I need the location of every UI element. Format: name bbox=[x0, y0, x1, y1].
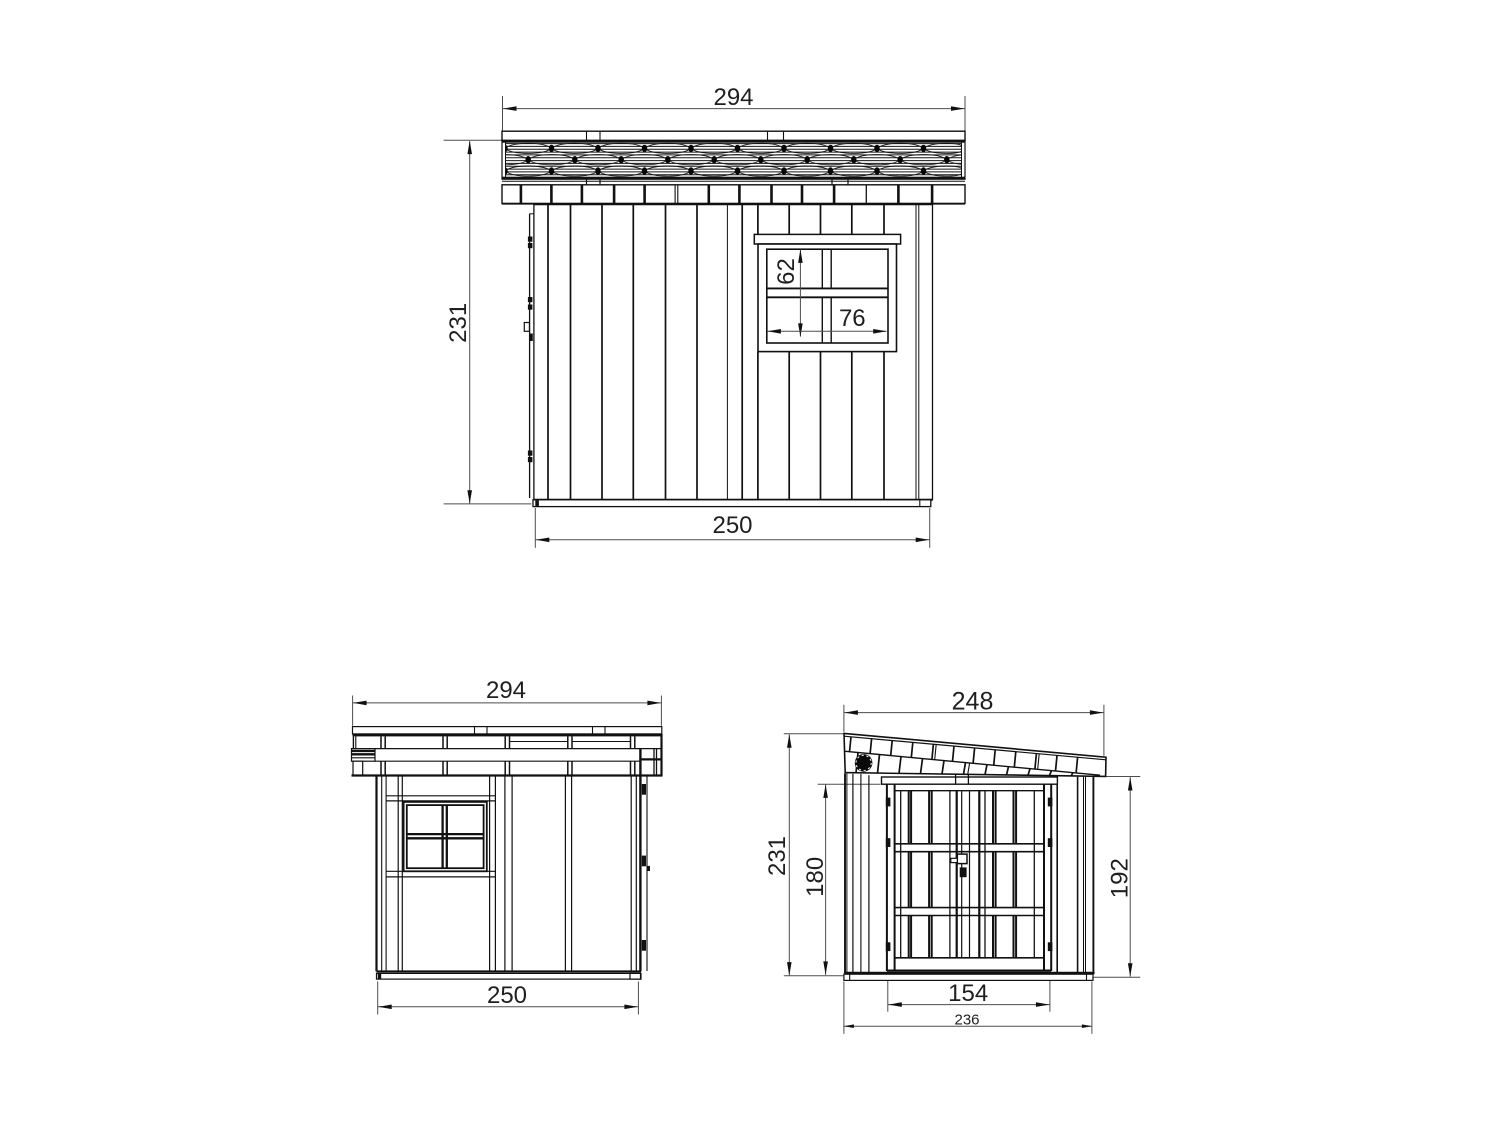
svg-text:231: 231 bbox=[764, 836, 791, 876]
svg-text:62: 62 bbox=[773, 258, 800, 285]
svg-text:76: 76 bbox=[839, 305, 866, 332]
svg-text:294: 294 bbox=[713, 84, 753, 111]
svg-text:154: 154 bbox=[948, 980, 988, 1007]
svg-text:231: 231 bbox=[445, 303, 472, 343]
svg-text:180: 180 bbox=[802, 857, 829, 897]
svg-text:250: 250 bbox=[487, 982, 527, 1009]
svg-text:250: 250 bbox=[712, 512, 752, 539]
svg-text:192: 192 bbox=[1107, 858, 1134, 898]
svg-text:248: 248 bbox=[952, 688, 994, 716]
svg-text:294: 294 bbox=[486, 677, 526, 704]
